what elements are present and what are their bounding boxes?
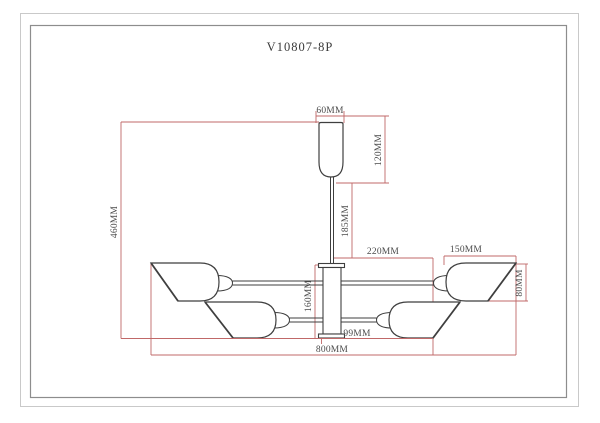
fixture xyxy=(151,123,516,339)
drawing-sheet: V10807-8P 60MM 120MM 185MM 460MM 220MM 1… xyxy=(0,0,600,423)
dim-overall-width-label: 800MM xyxy=(316,345,348,355)
ceiling-canopy xyxy=(319,123,343,178)
hub-bottom-plate xyxy=(319,334,345,338)
dim-canopy-height-label: 120MM xyxy=(374,134,384,166)
shade-upper-left xyxy=(151,263,219,301)
drawing-title: V10807-8P xyxy=(267,40,334,54)
sheet-border-outer xyxy=(21,14,579,407)
dim-hub-to-socket-label: 99MM xyxy=(343,329,371,339)
central-hub xyxy=(319,264,345,339)
dim-canopy-width-label: 60MM xyxy=(316,106,344,116)
shade-lower-left xyxy=(205,302,276,338)
dimension-lines-top xyxy=(121,339,433,345)
arm-upper-right xyxy=(336,281,434,285)
stem xyxy=(331,177,334,263)
dim-overall-height-label: 460MM xyxy=(110,206,120,238)
hub-top-plate xyxy=(319,264,345,268)
arm-lower-right xyxy=(336,318,380,322)
hub-body xyxy=(323,268,341,335)
dim-hub-height-label: 160MM xyxy=(304,280,314,312)
technical-drawing: V10807-8P 60MM 120MM 185MM 460MM 220MM 1… xyxy=(0,0,600,423)
arm-upper-left xyxy=(226,281,330,285)
shade-lower-right xyxy=(389,302,460,338)
shade-upper-right xyxy=(446,263,516,301)
dim-shade-length-label: 150MM xyxy=(450,245,482,255)
dim-stem-label: 185MM xyxy=(341,205,351,237)
dim-shade-height-label: 80MM xyxy=(515,269,525,297)
dim-center-to-shade-label: 220MM xyxy=(367,247,399,257)
